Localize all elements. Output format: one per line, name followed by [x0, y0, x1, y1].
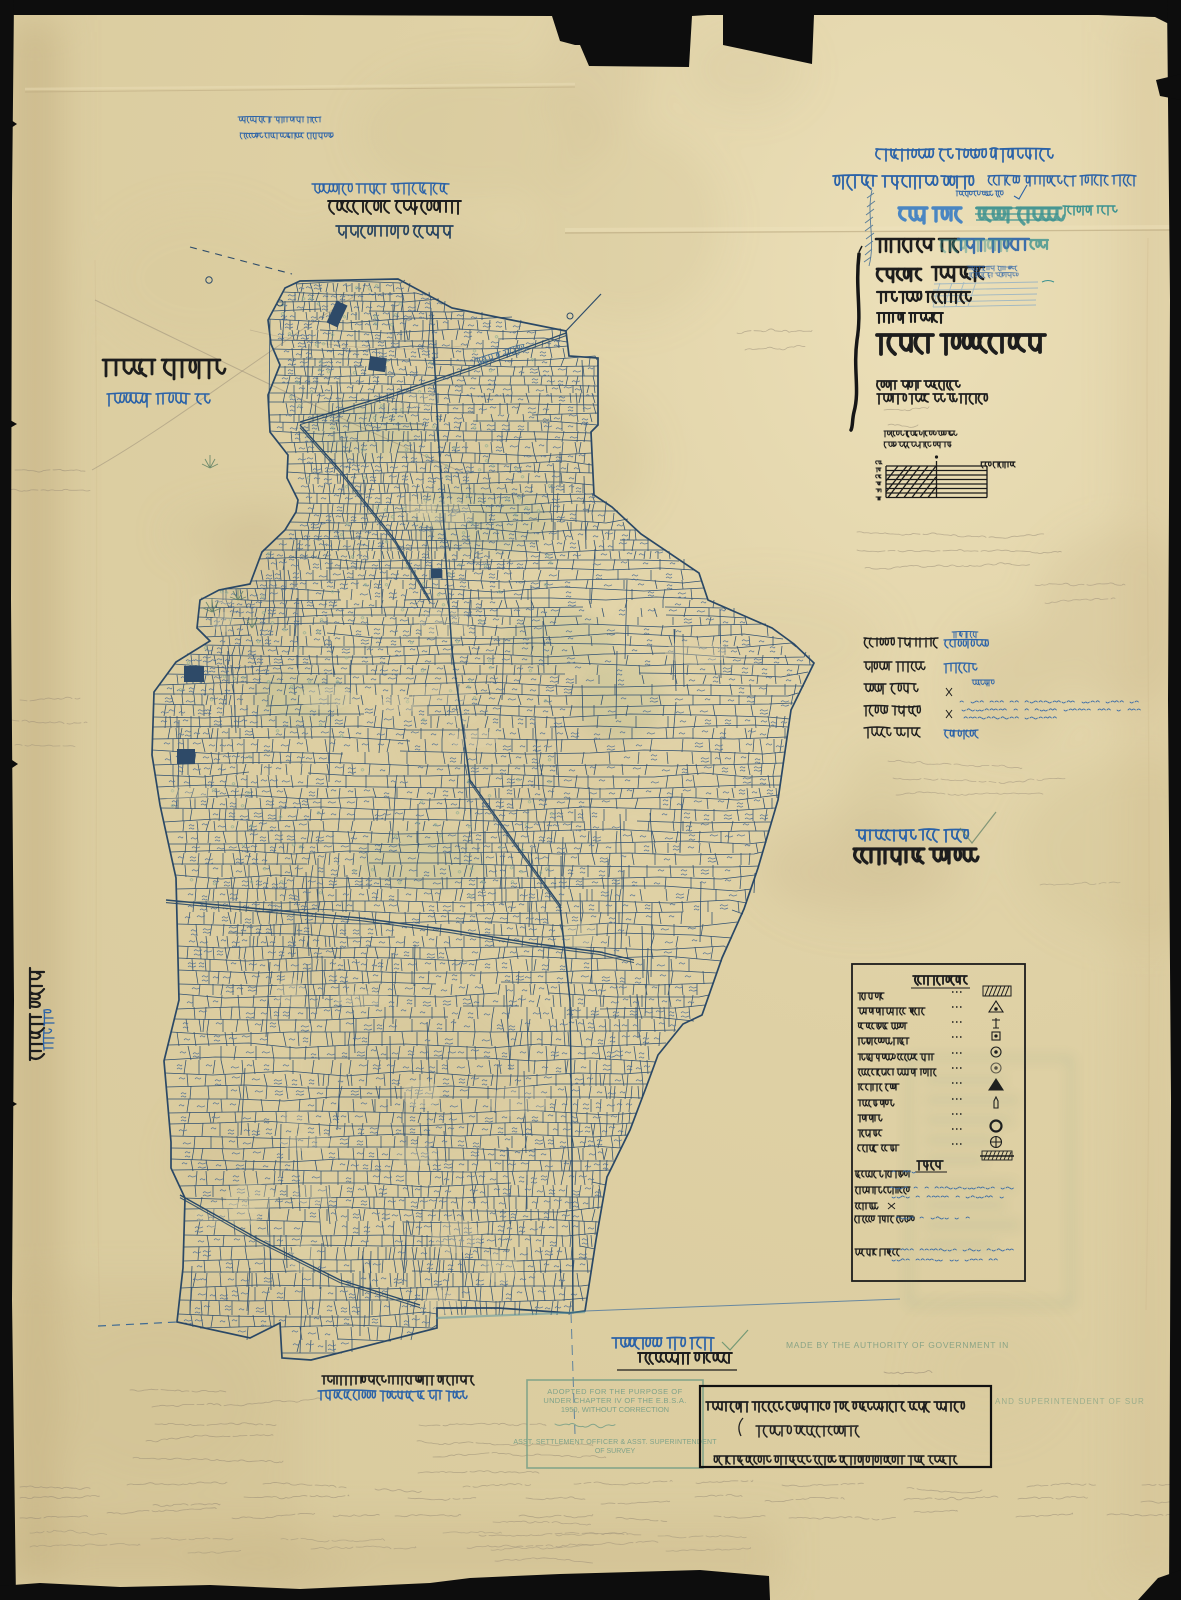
- svg-text:UNDER CHAPTER IV OF THE E.B.S.: UNDER CHAPTER IV OF THE E.B.S.A.: [543, 1396, 686, 1405]
- svg-text:1950, WITHOUT CORRECTION: 1950, WITHOUT CORRECTION: [561, 1405, 669, 1414]
- svg-text:MADE BY THE AUTHORITY OF GOVER: MADE BY THE AUTHORITY OF GOVERNMENT IN: [786, 1340, 1009, 1350]
- svg-text:ADOPTED FOR THE PURPOSE OF: ADOPTED FOR THE PURPOSE OF: [547, 1387, 682, 1396]
- svg-text:ASST. SETTLEMENT OFFICER & ASS: ASST. SETTLEMENT OFFICER & ASST. SUPERIN…: [513, 1439, 717, 1446]
- svg-text:OF SURVEY: OF SURVEY: [595, 1448, 636, 1455]
- svg-text:AND SUPERINTENDENT OF SUR: AND SUPERINTENDENT OF SUR: [995, 1397, 1145, 1406]
